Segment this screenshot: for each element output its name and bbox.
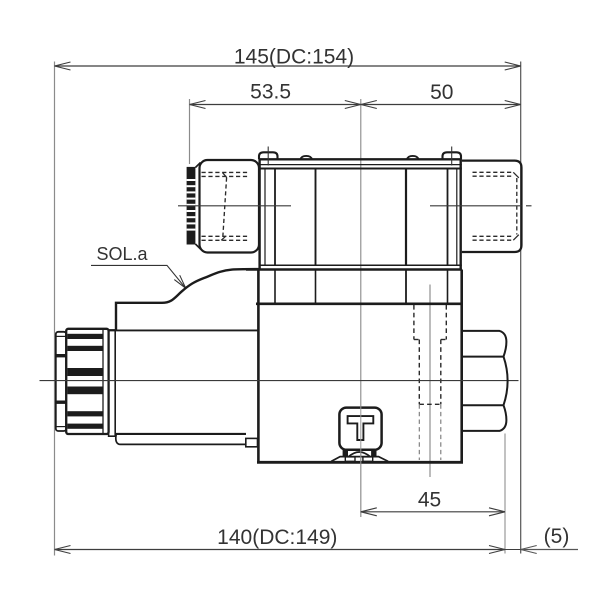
svg-text:145(DC:154): 145(DC:154) [234,45,354,68]
svg-text:(5): (5) [544,525,570,548]
svg-text:SOL.a: SOL.a [97,244,149,264]
svg-text:45: 45 [418,488,441,511]
svg-text:53.5: 53.5 [250,81,291,104]
svg-text:140(DC:149): 140(DC:149) [217,526,337,549]
svg-text:50: 50 [430,81,453,104]
